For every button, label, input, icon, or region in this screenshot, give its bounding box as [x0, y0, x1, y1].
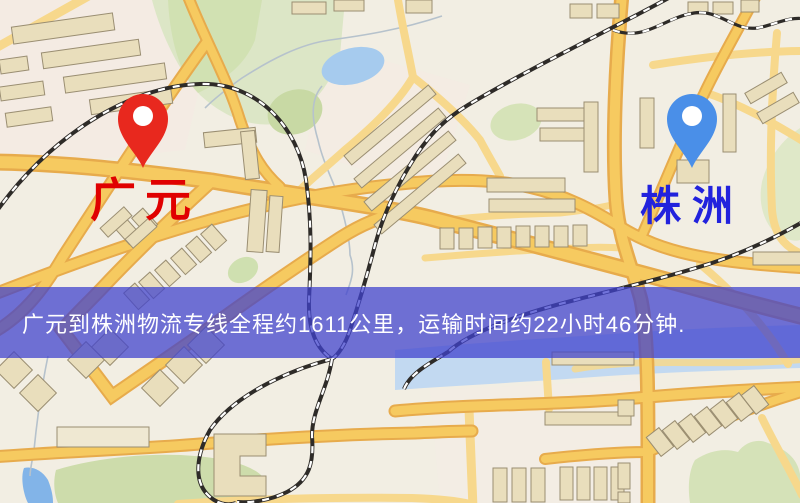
map-screenshot: 广元 株洲 广元到株洲物流专线全程约1611公里，运输时间约22小时46分钟. [0, 0, 800, 503]
map-canvas[interactable] [0, 0, 800, 503]
origin-marker-label: 广元 [90, 177, 200, 223]
origin-pin-icon[interactable] [115, 92, 171, 176]
route-info-banner: 广元到株洲物流专线全程约1611公里，运输时间约22小时46分钟. [0, 287, 800, 358]
origin-marker[interactable] [115, 92, 171, 176]
destination-pin-icon[interactable] [664, 92, 720, 176]
destination-marker[interactable] [664, 92, 720, 176]
route-info-text: 广元到株洲物流专线全程约1611公里，运输时间约22小时46分钟. [22, 307, 685, 339]
destination-marker-label: 株洲 [640, 186, 744, 227]
